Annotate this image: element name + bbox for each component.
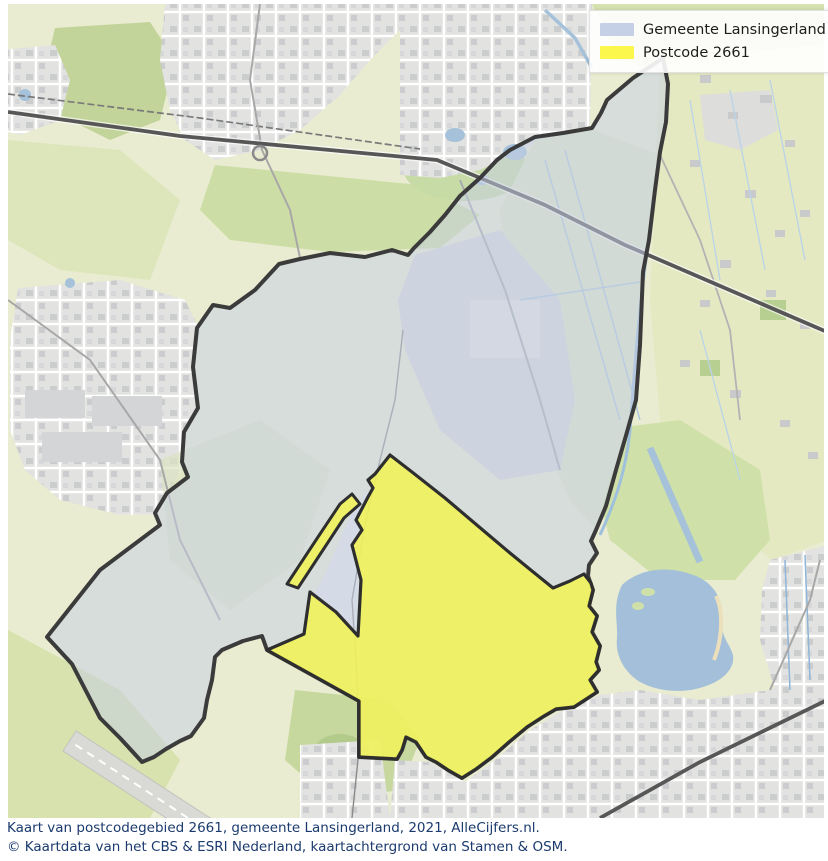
map-caption: Kaart van postcodegebied 2661, gemeente … xyxy=(7,819,568,856)
legend-label-municipality: Gemeente Lansingerland xyxy=(643,22,826,38)
legend-label-postcode: Postcode 2661 xyxy=(643,45,750,61)
map-layers xyxy=(0,4,828,849)
caption-line-2: © Kaartdata van het CBS & ESRI Nederland… xyxy=(7,838,568,857)
map-page: Gemeente Lansingerland Postcode 2661 Kaa… xyxy=(0,0,828,861)
municipality-swatch-icon xyxy=(600,23,634,36)
legend: Gemeente Lansingerland Postcode 2661 xyxy=(589,10,828,73)
caption-line-1: Kaart van postcodegebied 2661, gemeente … xyxy=(7,819,568,838)
legend-item-municipality: Gemeente Lansingerland xyxy=(600,18,826,41)
legend-item-postcode: Postcode 2661 xyxy=(600,41,826,64)
postcode-swatch-icon xyxy=(600,46,634,59)
map-canvas xyxy=(0,0,828,861)
